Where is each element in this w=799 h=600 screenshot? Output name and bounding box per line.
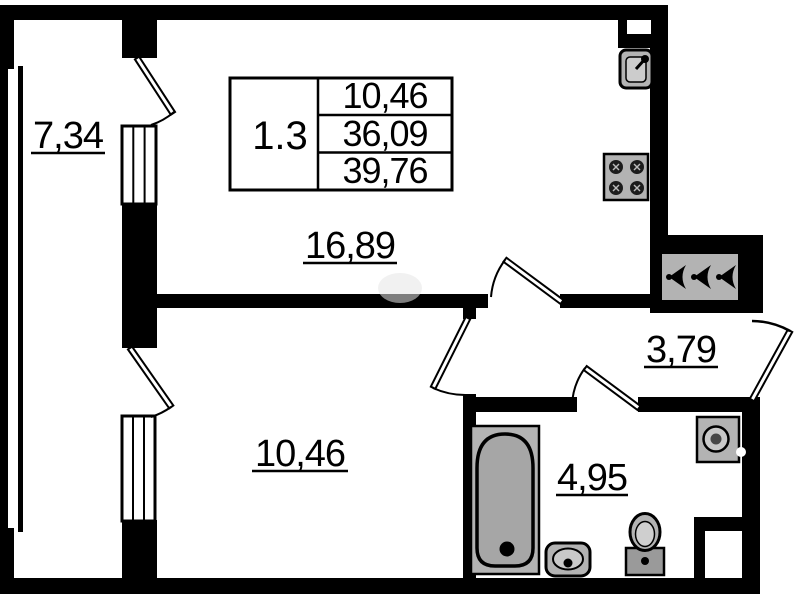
door-leaf: [584, 366, 641, 410]
bathroom-area-label: 4,95: [557, 457, 627, 499]
watermark-smudge: [378, 273, 422, 303]
ventilation-grille-icon: [661, 253, 739, 301]
entrance-door: [750, 321, 792, 401]
bedroom-door: [431, 317, 470, 395]
washer-drum-center: [711, 434, 722, 445]
door-swing-icon: [752, 321, 790, 331]
title-block: 1.3 10,46 36,09 39,76: [230, 75, 452, 191]
door-swing-icon: [491, 260, 505, 297]
wall-corner-notch: [627, 20, 651, 34]
balcony-glazing-line: [18, 66, 23, 532]
floor-plan-drawing: 1.3 10,46 36,09 39,76 7,34 16,89 10,46 3…: [0, 0, 799, 600]
wall-left-corner-top: [0, 5, 14, 69]
wall-top: [0, 5, 668, 20]
wall-balcony-partition-mid: [122, 203, 157, 348]
basin-drain: [564, 559, 573, 568]
door-swing-icon: [433, 388, 466, 395]
wall-bath-north-west: [476, 397, 577, 412]
bathtub-drain: [500, 542, 515, 557]
stove-icon: [604, 154, 648, 200]
wall-bath-north-east: [638, 397, 760, 412]
title-block-value-1: 10,46: [342, 75, 427, 116]
wash-basin-icon: [546, 543, 590, 576]
living-room-area-label: 16,89: [305, 225, 395, 267]
wall-hall-north: [560, 294, 655, 308]
washing-machine-icon: [697, 417, 746, 462]
living-room-window: [122, 126, 156, 204]
title-block-value-3: 39,76: [342, 150, 427, 191]
bedroom-area-label: 10,46: [255, 433, 345, 475]
title-block-value-2: 36,09: [342, 113, 427, 154]
bedroom-balcony-door: [128, 347, 173, 417]
door-leaf: [431, 317, 470, 389]
toilet-icon: [626, 514, 664, 576]
door-leaf: [128, 347, 173, 409]
window-icon: [122, 416, 155, 521]
door-swing-icon: [151, 112, 174, 125]
wall-bath-east: [742, 397, 760, 593]
door-leaf: [135, 57, 175, 115]
toilet-bowl-inner: [636, 522, 655, 547]
kitchen-sink-icon: [620, 50, 652, 88]
wall-bottom: [0, 578, 760, 594]
wall-right-upper: [650, 5, 668, 251]
wall-balcony-partition-top: [122, 18, 157, 58]
hallway-area-label: 3,79: [646, 329, 716, 371]
bathroom-door: [572, 366, 640, 410]
floor-plan-page: 1.3 10,46 36,09 39,76 7,34 16,89 10,46 3…: [0, 0, 799, 600]
bathtub-icon: [471, 426, 539, 574]
door-swing-icon: [151, 407, 171, 417]
wall-balcony-partition-bottom: [122, 520, 157, 579]
toilet-button: [641, 557, 649, 565]
window-icon: [122, 126, 156, 204]
wall-shaft-left: [694, 517, 705, 579]
wall-interior-living-bedroom: [155, 294, 488, 308]
balcony-area-label: 7,34: [33, 115, 104, 157]
bedroom-window: [122, 416, 155, 521]
door-leaf: [750, 330, 792, 402]
unit-number: 1.3: [252, 114, 308, 158]
door-leaf: [503, 258, 563, 304]
living-room-balcony-door: [135, 57, 175, 125]
living-room-hall-door: [491, 258, 563, 304]
washer-notch: [736, 447, 746, 457]
wall-left-outer: [0, 5, 8, 593]
